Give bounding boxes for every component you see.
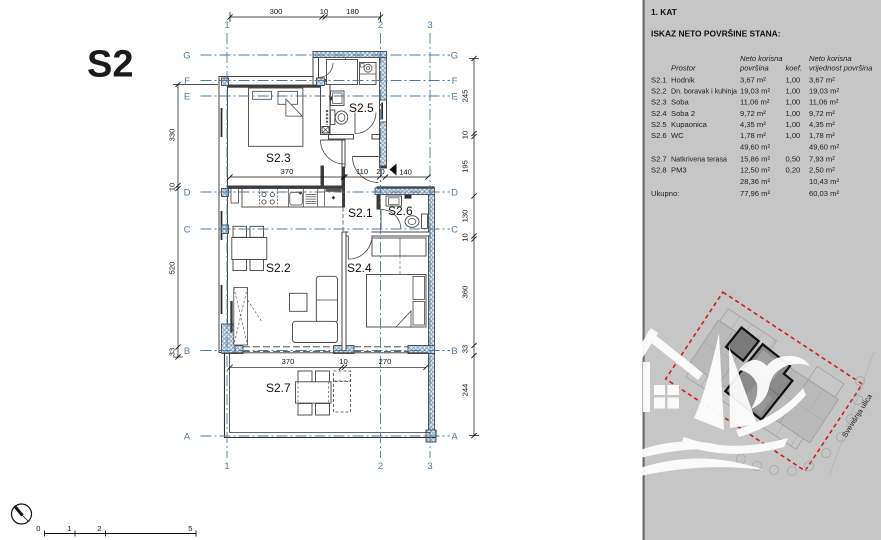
svg-text:S2.7: S2.7 bbox=[651, 155, 667, 164]
svg-text:B: B bbox=[184, 346, 190, 357]
svg-text:1,00: 1,00 bbox=[786, 131, 801, 140]
svg-text:Natkrivena terasa: Natkrivena terasa bbox=[671, 155, 728, 164]
svg-text:S2.3: S2.3 bbox=[266, 151, 291, 165]
svg-text:Hodnik: Hodnik bbox=[671, 75, 695, 84]
svg-text:330: 330 bbox=[168, 129, 177, 142]
svg-text:G: G bbox=[183, 50, 190, 61]
svg-text:370: 370 bbox=[281, 167, 294, 176]
svg-text:S2.3: S2.3 bbox=[651, 98, 667, 107]
svg-text:10: 10 bbox=[168, 183, 177, 191]
svg-text:49,60 m²: 49,60 m² bbox=[740, 142, 770, 151]
svg-text:G: G bbox=[451, 50, 458, 61]
svg-text:5: 5 bbox=[188, 524, 192, 533]
svg-text:20: 20 bbox=[376, 167, 384, 176]
svg-text:S2.6: S2.6 bbox=[388, 204, 413, 218]
svg-text:0: 0 bbox=[36, 524, 40, 533]
svg-text:Neto korisna: Neto korisna bbox=[809, 54, 852, 63]
svg-text:270: 270 bbox=[379, 357, 392, 366]
svg-text:S2.5: S2.5 bbox=[651, 120, 667, 129]
svg-text:1,00: 1,00 bbox=[786, 120, 801, 129]
svg-text:S2.2: S2.2 bbox=[266, 261, 291, 275]
svg-text:S2.5: S2.5 bbox=[349, 101, 374, 115]
svg-text:površina: površina bbox=[739, 64, 769, 73]
svg-text:520: 520 bbox=[168, 262, 177, 275]
svg-text:2,50 m²: 2,50 m² bbox=[809, 166, 835, 175]
svg-text:C: C bbox=[184, 224, 191, 235]
svg-text:Soba 2: Soba 2 bbox=[671, 109, 695, 118]
svg-text:S2.1: S2.1 bbox=[651, 75, 667, 84]
svg-text:S2.1: S2.1 bbox=[348, 206, 373, 220]
svg-text:E: E bbox=[451, 91, 457, 102]
svg-text:S2.2: S2.2 bbox=[651, 87, 667, 96]
svg-text:vrijednost površina: vrijednost površina bbox=[809, 64, 872, 73]
svg-text:C: C bbox=[451, 224, 458, 235]
svg-text:E: E bbox=[184, 91, 190, 102]
svg-text:7,93 m²: 7,93 m² bbox=[809, 155, 835, 164]
svg-text:4,35 m²: 4,35 m² bbox=[809, 120, 835, 129]
svg-text:S2.7: S2.7 bbox=[266, 381, 291, 395]
svg-text:1,00: 1,00 bbox=[786, 109, 801, 118]
svg-text:0,20: 0,20 bbox=[786, 166, 801, 175]
svg-text:3,67 m²: 3,67 m² bbox=[809, 75, 835, 84]
svg-text:360: 360 bbox=[461, 286, 470, 299]
svg-text:11,06 m²: 11,06 m² bbox=[809, 98, 839, 107]
svg-text:10: 10 bbox=[461, 131, 470, 139]
svg-text:S2.6: S2.6 bbox=[651, 131, 667, 140]
svg-text:9,72 m²: 9,72 m² bbox=[809, 109, 835, 118]
svg-text:4,35 m²: 4,35 m² bbox=[740, 120, 766, 129]
svg-text:2: 2 bbox=[378, 461, 383, 472]
svg-text:0,50: 0,50 bbox=[786, 155, 801, 164]
svg-text:ISKAZ NETO POVRŠINE STANA:: ISKAZ NETO POVRŠINE STANA: bbox=[651, 28, 781, 39]
svg-text:D: D bbox=[184, 187, 191, 198]
svg-text:300: 300 bbox=[270, 7, 283, 16]
svg-text:1,00: 1,00 bbox=[786, 75, 801, 84]
svg-text:2: 2 bbox=[97, 524, 101, 533]
svg-text:1: 1 bbox=[67, 524, 71, 533]
svg-text:245: 245 bbox=[461, 90, 470, 103]
svg-text:Neto korisna: Neto korisna bbox=[740, 54, 783, 63]
svg-text:77,96 m²: 77,96 m² bbox=[740, 189, 770, 198]
svg-text:11,06 m²: 11,06 m² bbox=[740, 98, 770, 107]
svg-text:28,36 m²: 28,36 m² bbox=[740, 177, 770, 186]
svg-text:140: 140 bbox=[399, 168, 412, 177]
svg-text:S2.4: S2.4 bbox=[347, 261, 372, 275]
svg-text:A: A bbox=[184, 431, 191, 442]
svg-text:33: 33 bbox=[461, 345, 470, 353]
svg-text:244: 244 bbox=[461, 384, 470, 397]
svg-text:10,43 m²: 10,43 m² bbox=[809, 177, 839, 186]
svg-text:33: 33 bbox=[168, 348, 177, 356]
svg-text:195: 195 bbox=[461, 160, 470, 173]
svg-text:15,86 m²: 15,86 m² bbox=[740, 155, 770, 164]
svg-text:A: A bbox=[451, 431, 458, 442]
svg-text:koef.: koef. bbox=[786, 64, 802, 73]
svg-text:PM3: PM3 bbox=[671, 166, 687, 175]
svg-text:180: 180 bbox=[346, 7, 359, 16]
svg-text:12,50 m²: 12,50 m² bbox=[740, 166, 770, 175]
svg-text:19,03 m²: 19,03 m² bbox=[740, 87, 770, 96]
svg-text:D: D bbox=[451, 187, 458, 198]
svg-text:9,72 m²: 9,72 m² bbox=[740, 109, 766, 118]
svg-text:10: 10 bbox=[461, 233, 470, 241]
svg-text:Soba: Soba bbox=[671, 98, 690, 107]
svg-text:130: 130 bbox=[461, 210, 470, 223]
svg-text:Kupaonica: Kupaonica bbox=[671, 120, 708, 129]
svg-text:1. KAT: 1. KAT bbox=[651, 7, 678, 17]
svg-text:1,00: 1,00 bbox=[786, 98, 801, 107]
svg-text:19,03 m²: 19,03 m² bbox=[809, 87, 839, 96]
svg-text:110: 110 bbox=[356, 167, 368, 176]
svg-text:1: 1 bbox=[224, 461, 229, 472]
svg-text:3: 3 bbox=[427, 20, 432, 31]
svg-text:1: 1 bbox=[224, 20, 229, 31]
svg-text:Prostor: Prostor bbox=[671, 64, 696, 73]
svg-text:10: 10 bbox=[339, 357, 347, 366]
svg-text:S2.4: S2.4 bbox=[651, 109, 667, 118]
svg-text:Dn. boravak i kuhinja: Dn. boravak i kuhinja bbox=[671, 87, 738, 96]
svg-text:F: F bbox=[184, 76, 190, 87]
svg-text:49,60 m²: 49,60 m² bbox=[809, 142, 839, 151]
svg-text:3: 3 bbox=[427, 461, 432, 472]
svg-text:B: B bbox=[451, 346, 457, 357]
svg-text:3,67 m²: 3,67 m² bbox=[740, 75, 766, 84]
svg-text:10: 10 bbox=[320, 7, 328, 16]
svg-text:S2.8: S2.8 bbox=[651, 166, 667, 175]
svg-text:1,78 m²: 1,78 m² bbox=[740, 131, 766, 140]
svg-text:S2: S2 bbox=[87, 44, 133, 86]
svg-text:Ukupno:: Ukupno: bbox=[651, 189, 679, 198]
svg-text:60,03 m²: 60,03 m² bbox=[809, 189, 839, 198]
svg-text:370: 370 bbox=[282, 357, 295, 366]
svg-text:F: F bbox=[452, 76, 458, 87]
svg-text:1,00: 1,00 bbox=[786, 87, 801, 96]
svg-text:WC: WC bbox=[671, 131, 684, 140]
svg-text:1,78 m²: 1,78 m² bbox=[809, 131, 835, 140]
